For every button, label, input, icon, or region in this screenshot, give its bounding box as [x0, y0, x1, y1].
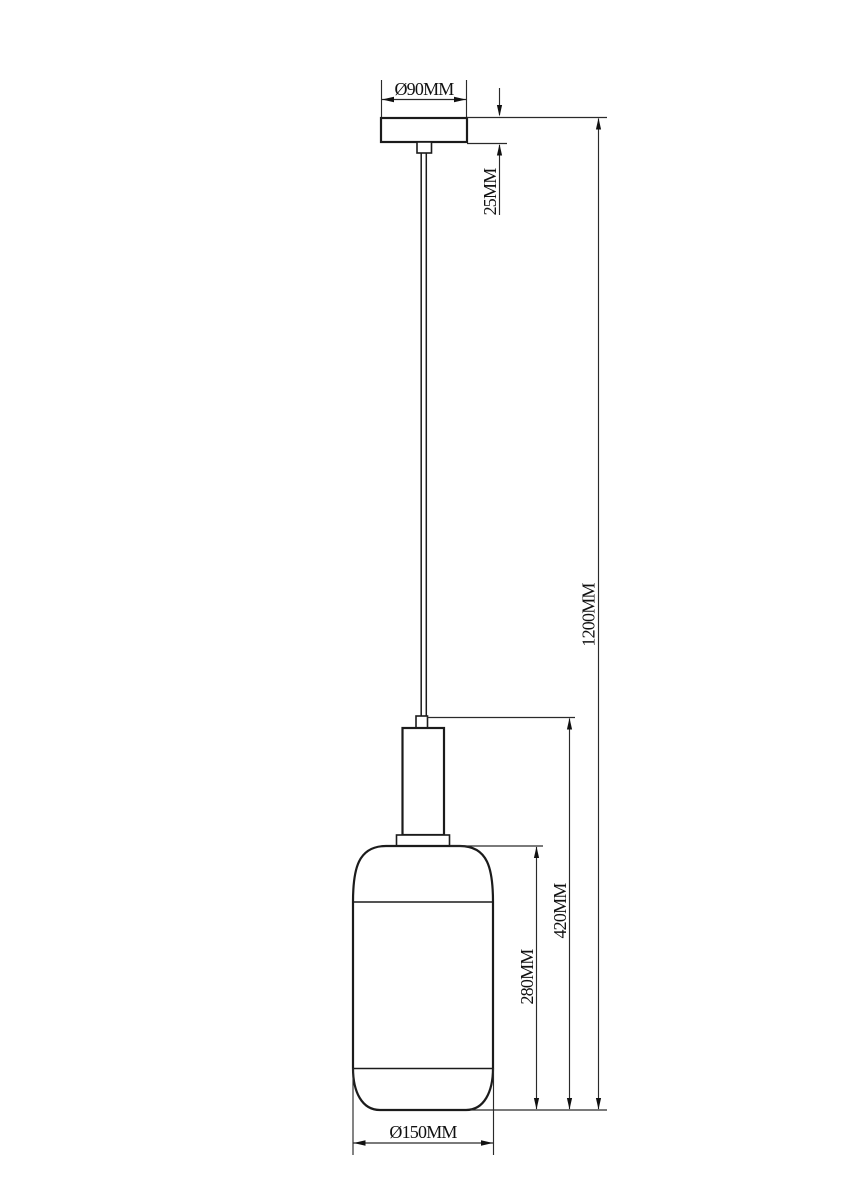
- dimension-label-canopy-diameter: Ø90MM: [394, 79, 454, 99]
- arrowhead-left-icon: [382, 97, 394, 102]
- technical-drawing-canvas: Ø90MM 25MM 280MM: [0, 0, 848, 1200]
- arrowhead-up-icon: [497, 144, 502, 156]
- socket-cylinder: [403, 728, 445, 835]
- dimension-label-shade-diameter: Ø150MM: [389, 1122, 457, 1142]
- arrowhead-down-icon: [567, 1098, 572, 1110]
- glass-shade-outline: [353, 846, 493, 1110]
- arrowhead-right-icon: [454, 97, 466, 102]
- dimension-canopy-diameter: Ø90MM: [382, 79, 467, 117]
- dimension-fixture-height: 420MM: [550, 718, 572, 1110]
- pendant-lamp-dimension-drawing: Ø90MM 25MM 280MM: [0, 0, 848, 1200]
- arrowhead-left-icon: [354, 1140, 366, 1145]
- arrowhead-up-icon: [534, 847, 539, 859]
- dimension-label-shade-height: 280MM: [517, 949, 537, 1005]
- dimension-shade-height: 280MM: [517, 847, 539, 1110]
- dimension-canopy-height: 25MM: [467, 88, 607, 215]
- ceiling-canopy: [381, 118, 467, 142]
- dimension-label-overall-height: 1200MM: [579, 583, 599, 647]
- arrowhead-down-icon: [596, 1098, 601, 1110]
- arrowhead-up-icon: [567, 718, 572, 730]
- pendant-lamp-fixture: [353, 118, 493, 1110]
- arrowhead-down-icon: [534, 1098, 539, 1110]
- arrowhead-right-icon: [481, 1140, 493, 1145]
- arrowhead-down-icon: [497, 105, 502, 117]
- dimension-label-fixture-height: 420MM: [550, 883, 570, 939]
- dimension-label-canopy-height: 25MM: [480, 168, 500, 216]
- socket-flange: [397, 835, 450, 846]
- arrowhead-up-icon: [596, 118, 601, 130]
- socket-cap: [416, 716, 428, 728]
- dimension-overall-height: 1200MM: [579, 118, 602, 1110]
- canopy-cord-connector: [417, 142, 432, 153]
